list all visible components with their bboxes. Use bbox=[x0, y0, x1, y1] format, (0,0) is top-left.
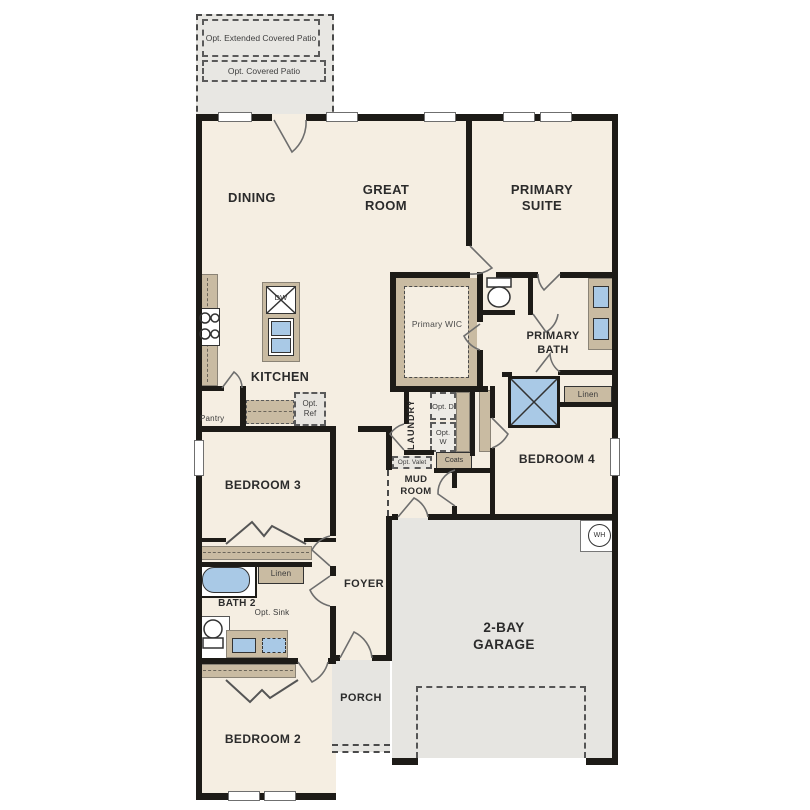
garage-door-outline bbox=[416, 686, 586, 758]
wall-toilet-room-right bbox=[528, 272, 533, 315]
island-sink-basin-2 bbox=[271, 338, 291, 353]
wall-bath2-top bbox=[196, 562, 312, 567]
bedroom2-closet-dash bbox=[203, 670, 293, 671]
water-heater-label: WH bbox=[594, 532, 606, 539]
wall-bed3-closet-b bbox=[304, 538, 336, 542]
bedroom3-closet-dash bbox=[203, 552, 309, 553]
room-label-foyer: FOYER bbox=[336, 578, 392, 592]
primary-sink-1 bbox=[593, 286, 609, 308]
opt-counter-dashline bbox=[248, 411, 292, 412]
primary-sink-2 bbox=[593, 318, 609, 340]
water-heater-icon: WH bbox=[588, 524, 611, 547]
wall-suite-bottom-a bbox=[390, 272, 470, 278]
wall-mudroom-right-a bbox=[452, 468, 457, 488]
room-label-mud-room: MUD ROOM bbox=[390, 474, 442, 498]
wall-suite-bottom-c bbox=[560, 272, 618, 278]
wall-porch-top-b bbox=[372, 655, 392, 661]
porch-step-line-1 bbox=[332, 744, 390, 746]
coats-label: Coats bbox=[445, 457, 463, 464]
wall-porch-top-a bbox=[332, 655, 340, 661]
patio-door-opening bbox=[272, 114, 306, 121]
wall-bed3-right-c bbox=[330, 606, 336, 662]
bedroom3-closet-shelf bbox=[200, 546, 312, 560]
dishwasher-label: DW bbox=[268, 294, 294, 303]
opt-ref-box: Opt. Ref bbox=[294, 392, 326, 426]
wall-garage-top-b bbox=[428, 514, 618, 520]
room-label-primary-wic: Primary WIC bbox=[408, 320, 466, 330]
wall-laundry-right bbox=[470, 386, 475, 456]
opt-valet-box: Opt. Valet bbox=[392, 456, 432, 469]
wall-wic-left bbox=[390, 272, 396, 392]
window-bedroom3 bbox=[194, 440, 204, 476]
wall-foyer-right-a bbox=[386, 426, 392, 470]
window-suite-1 bbox=[503, 112, 535, 122]
island-sink-basin-1 bbox=[271, 321, 291, 336]
wall-shower-left-stub bbox=[502, 372, 512, 377]
room-label-porch: PORCH bbox=[334, 692, 388, 706]
floor-plan-canvas: Opt. Extended Covered Patio Opt. Covered… bbox=[0, 0, 810, 810]
wall-bath2-bottom bbox=[196, 658, 298, 664]
wall-below-linen bbox=[558, 402, 618, 407]
bath2-opt-sink bbox=[262, 638, 286, 653]
wall-bed3-right-a bbox=[330, 426, 336, 536]
wic-shelf-dashline bbox=[404, 286, 469, 378]
window-bedroom2-1 bbox=[228, 791, 260, 801]
laundry-cabinet bbox=[456, 392, 470, 452]
room-label-bedroom2: BEDROOM 2 bbox=[210, 732, 316, 747]
wall-toilet-room-bottom bbox=[483, 310, 515, 315]
room-label-bedroom3: BEDROOM 3 bbox=[210, 478, 316, 493]
opt-covered-patio-box: Opt. Covered Patio bbox=[202, 60, 326, 82]
porch-floor bbox=[332, 660, 390, 752]
opt-washer-label: Opt. W bbox=[432, 428, 454, 446]
room-label-bedroom4: BEDROOM 4 bbox=[504, 452, 610, 467]
opt-extended-patio-box: Opt. Extended Covered Patio bbox=[202, 19, 320, 57]
window-suite-2 bbox=[540, 112, 572, 122]
mudroom-opening-dash bbox=[387, 470, 389, 516]
room-label-primary-suite: PRIMARY SUITE bbox=[498, 182, 586, 215]
wall-bedroom4-west-a bbox=[490, 386, 495, 418]
wall-above-linen bbox=[558, 370, 618, 375]
bathtub bbox=[202, 567, 250, 593]
primary-shower bbox=[508, 376, 560, 428]
bath2-linen-label: Linen bbox=[260, 569, 302, 578]
garage-door-opening bbox=[418, 758, 586, 767]
wall-pantry-top-a bbox=[196, 386, 224, 391]
window-greatroom-2 bbox=[424, 112, 456, 122]
opt-washer-box: Opt. W bbox=[430, 422, 456, 452]
opt-ref-label: Opt. Ref bbox=[296, 399, 324, 418]
wall-mudroom-top bbox=[434, 468, 494, 473]
opt-counter-dashed bbox=[246, 400, 294, 424]
window-bedroom4 bbox=[610, 438, 620, 476]
window-greatroom-1 bbox=[326, 112, 358, 122]
room-label-kitchen: KITCHEN bbox=[244, 370, 316, 386]
opt-covered-patio-label: Opt. Covered Patio bbox=[228, 66, 300, 76]
room-label-primary-bath: PRIMARY BATH bbox=[512, 330, 594, 358]
window-bedroom2-2 bbox=[264, 791, 296, 801]
wall-wic-right-b bbox=[477, 350, 483, 392]
opt-valet-label: Opt. Valet bbox=[398, 459, 426, 467]
room-label-garage: 2-BAY GARAGE bbox=[456, 620, 552, 654]
opt-dryer-box: Opt. D bbox=[430, 392, 456, 420]
wall-bed3-right-b bbox=[330, 566, 336, 576]
wall-garage-right bbox=[612, 518, 618, 765]
bath2-sink bbox=[232, 638, 256, 653]
coats-closet: Coats bbox=[436, 452, 472, 469]
window-dining bbox=[218, 112, 252, 122]
porch-step-line-2 bbox=[332, 751, 390, 753]
wall-greatroom-suite bbox=[466, 114, 472, 246]
opt-dryer-label: Opt. D bbox=[432, 402, 454, 411]
wall-garage-top-a bbox=[392, 514, 398, 520]
primary-linen-label: Linen bbox=[566, 390, 610, 399]
wall-bed3-closet-a bbox=[196, 538, 226, 542]
wall-bedroom4-west-b bbox=[490, 448, 495, 518]
pantry-label: Pantry bbox=[200, 414, 240, 423]
opt-extended-patio-label: Opt. Extended Covered Patio bbox=[206, 33, 317, 43]
bedroom2-closet-shelf bbox=[200, 664, 296, 678]
room-label-laundry: LAUNDRY bbox=[406, 394, 422, 456]
room-label-dining: DINING bbox=[212, 190, 292, 206]
wall-pantry-right bbox=[240, 386, 246, 428]
opt-sink-label: Opt. Sink bbox=[252, 608, 292, 617]
wall-bedroom3-top bbox=[196, 426, 336, 432]
room-label-great-room: GREAT ROOM bbox=[350, 182, 422, 215]
wall-hall-stub bbox=[358, 426, 392, 432]
